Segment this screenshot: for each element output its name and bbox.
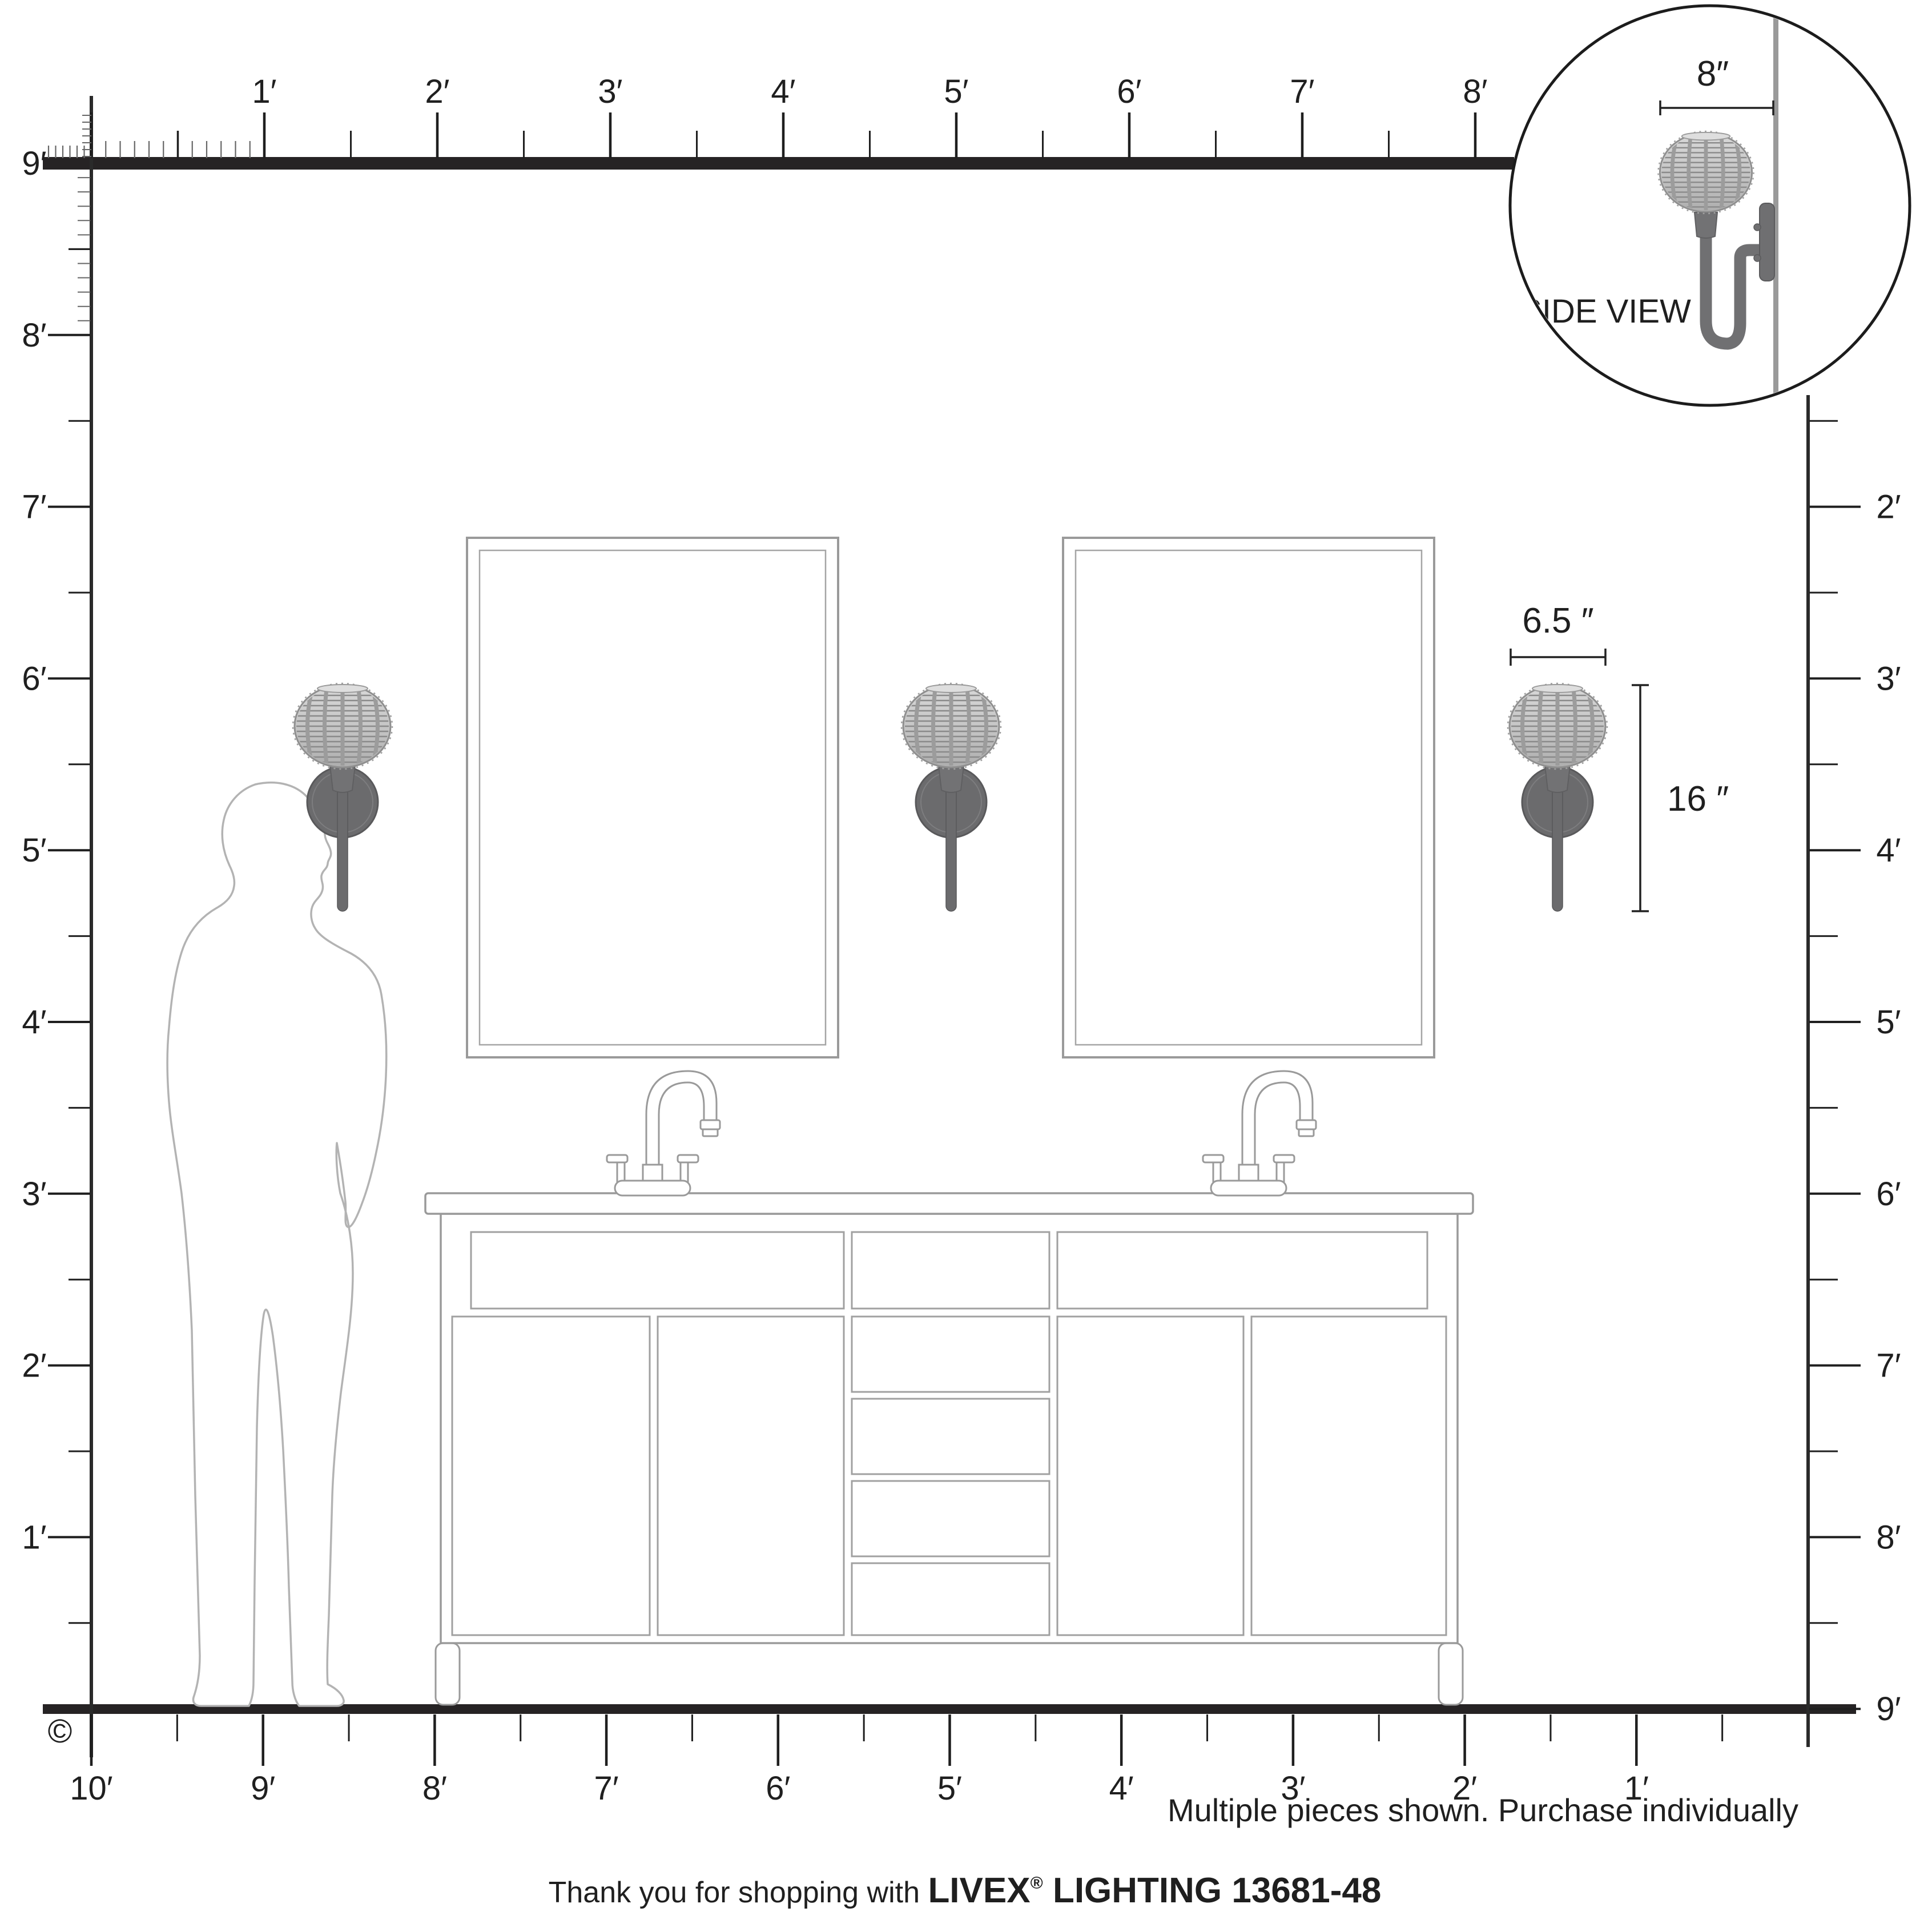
ruler-label: 2′: [22, 1347, 46, 1384]
ruler-label: 1′: [252, 73, 276, 110]
ruler-label: 5′: [937, 1770, 962, 1807]
width-dimension: [1511, 649, 1605, 666]
ruler-label: 1′: [22, 1519, 46, 1556]
person-silhouette: [167, 783, 387, 1706]
vanity-door: [452, 1317, 650, 1635]
thanks-text: Thank you for shopping with: [549, 1876, 928, 1909]
ruler-label: 8′: [1876, 1519, 1901, 1556]
ruler-label: 8′: [422, 1770, 447, 1807]
vanity-top-panel-right: [1057, 1232, 1427, 1309]
ruler-label: 2′: [425, 73, 449, 110]
vanity-drawer: [852, 1481, 1049, 1556]
ruler-label: 7′: [1290, 73, 1314, 110]
side-view-inset: 8″ SIDE VIEW: [1510, 6, 1910, 405]
right-ruler-line: [1806, 395, 1810, 1747]
vanity-leg-left: [436, 1643, 460, 1705]
ruler-label: 9′: [251, 1770, 275, 1807]
ruler-label: 5′: [944, 73, 968, 110]
brand-name: LIVEX: [928, 1871, 1030, 1910]
vanity-leg-right: [1439, 1643, 1463, 1705]
wall-sconce-right: [1508, 683, 1607, 911]
ruler-label: 5′: [1876, 1004, 1901, 1041]
vanity-door: [1057, 1317, 1243, 1635]
vanity-drawer: [852, 1563, 1049, 1635]
vanity-drawer: [852, 1399, 1049, 1474]
ruler-label: 3′: [598, 73, 622, 110]
ruler-label: 4′: [22, 1004, 46, 1041]
faucet-left: [607, 1071, 720, 1196]
registered-mark: ®: [1031, 1874, 1043, 1893]
ruler-label: 7′: [22, 489, 46, 526]
depth-dim-label: 8″: [1697, 54, 1729, 94]
mirror-right: [1063, 538, 1434, 1057]
ruler-label: 4′: [1109, 1770, 1134, 1807]
ruler-label: 10′: [70, 1770, 112, 1807]
vanity-top-panel-left: [471, 1232, 844, 1309]
vanity: [425, 1193, 1473, 1705]
ruler-left: 9′8′7′6′5′4′3′2′1′: [22, 115, 91, 1623]
ruler-label: 8′: [22, 317, 46, 354]
height-dim-label: 16 ″: [1667, 779, 1729, 819]
ruler-label: 4′: [771, 73, 795, 110]
ruler-label: 7′: [1876, 1347, 1901, 1384]
ruler-label: 8′: [1463, 73, 1487, 110]
purchase-note: Multiple pieces shown. Purchase individu…: [1168, 1792, 1798, 1828]
ruler-label: 2′: [1876, 489, 1901, 526]
product-number: LIGHTING 13681-48: [1043, 1871, 1382, 1910]
diagram-canvas: 1′2′3′4′5′6′7′8′ 9′8′7′6′5′4′3′2′1′ 2′3′…: [0, 0, 1932, 1932]
wall-sconce-center: [901, 683, 1001, 911]
wall-cross-section: [1773, 6, 1778, 405]
ruler-top: 1′2′3′4′5′6′7′8′: [49, 73, 1488, 158]
copyright-mark: ©: [48, 1713, 73, 1750]
ruler-label: 5′: [22, 832, 46, 869]
ruler-right: 2′3′4′5′6′7′8′9′: [1809, 421, 1901, 1728]
spec-sheet: 1′2′3′4′5′6′7′8′ 9′8′7′6′5′4′3′2′1′ 2′3′…: [0, 0, 1932, 1932]
mirror-left: [467, 538, 838, 1057]
left-ruler-line: [90, 96, 93, 1757]
ruler-label: 6′: [1876, 1176, 1901, 1213]
vanity-door: [1251, 1317, 1446, 1635]
ruler-label: 6′: [22, 660, 46, 697]
ruler-label: 6′: [1117, 73, 1141, 110]
ruler-label: 7′: [594, 1770, 619, 1807]
vanity-countertop: [425, 1193, 1473, 1214]
vanity-drawer: [852, 1317, 1049, 1392]
width-dim-label: 6.5 ″: [1522, 601, 1593, 641]
side-view-label: SIDE VIEW: [1520, 293, 1691, 330]
sconce-side-backplate: [1760, 203, 1774, 281]
faucet-right: [1203, 1071, 1316, 1196]
height-dimension: [1632, 685, 1649, 911]
vanity-drawer: [852, 1232, 1049, 1309]
ruler-label: 9′: [22, 145, 46, 182]
vanity-door: [658, 1317, 844, 1635]
footer-thanks: Thank you for shopping with LIVEX® LIGHT…: [549, 1871, 1382, 1910]
ruler-label: 3′: [22, 1176, 46, 1213]
ruler-label: 6′: [766, 1770, 790, 1807]
ruler-label: 3′: [1876, 660, 1901, 697]
ruler-label: 4′: [1876, 832, 1901, 869]
ceiling-wall-line: [43, 157, 1514, 170]
ruler-label: 9′: [1876, 1690, 1901, 1728]
